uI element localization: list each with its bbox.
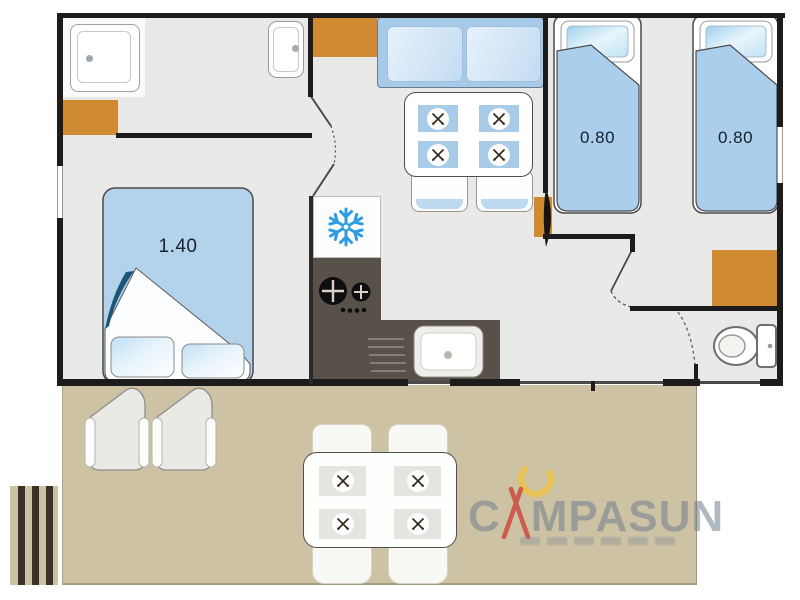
pillow (182, 344, 244, 378)
logo-tagline-blur (520, 537, 680, 545)
floorplan-canvas: 1.40 0.80 0.80 C MPASUN (0, 0, 800, 600)
lounge-chair (85, 388, 149, 470)
drain-icon (444, 351, 452, 359)
entry-door-stop (591, 381, 595, 391)
logo-wordmark: C MPASUN (468, 485, 724, 539)
wall-bathroom-bedroom (116, 133, 312, 138)
pillow (111, 337, 174, 377)
wall-hall-stub (630, 234, 635, 252)
wall-bottom-segment (760, 379, 783, 386)
single-bed-2-size-label: 0.80 (693, 128, 778, 148)
stove-burners (319, 277, 371, 313)
wall-right (777, 13, 783, 385)
logo-letter-c: C (468, 495, 501, 539)
wall-top (57, 13, 785, 18)
wall-bottom-segment (57, 379, 408, 386)
wall-wc-stub (694, 364, 698, 384)
hall-door (611, 250, 632, 307)
lounge-chair (152, 388, 216, 470)
window-left (57, 166, 63, 218)
double-bed-size-label: 1.40 (103, 236, 253, 258)
single-bed-1 (554, 15, 641, 213)
wall-bottom-segment (450, 379, 520, 386)
single-bed-2 (693, 15, 778, 213)
logo-letters-rest: MPASUN (531, 495, 724, 539)
campasun-logo: C MPASUN (468, 455, 708, 555)
wc-door-swing (678, 312, 695, 365)
single-bed-1-size-label: 0.80 (554, 128, 641, 148)
drainboard-lines (368, 339, 406, 371)
kitchen-sink (414, 326, 483, 377)
wall-wc-top (630, 306, 779, 311)
double-bed (103, 188, 253, 383)
tent-icon (498, 485, 534, 539)
toilet-icon (714, 325, 776, 367)
wall-bathroom-kitchen (308, 13, 313, 97)
wall-hall-top (543, 234, 635, 239)
wall-living-twinroom (543, 13, 548, 193)
snowflake-icon (328, 209, 365, 245)
wall-bedroom-kitchen (309, 196, 313, 384)
bathroom-bedroom-doors (310, 95, 335, 196)
